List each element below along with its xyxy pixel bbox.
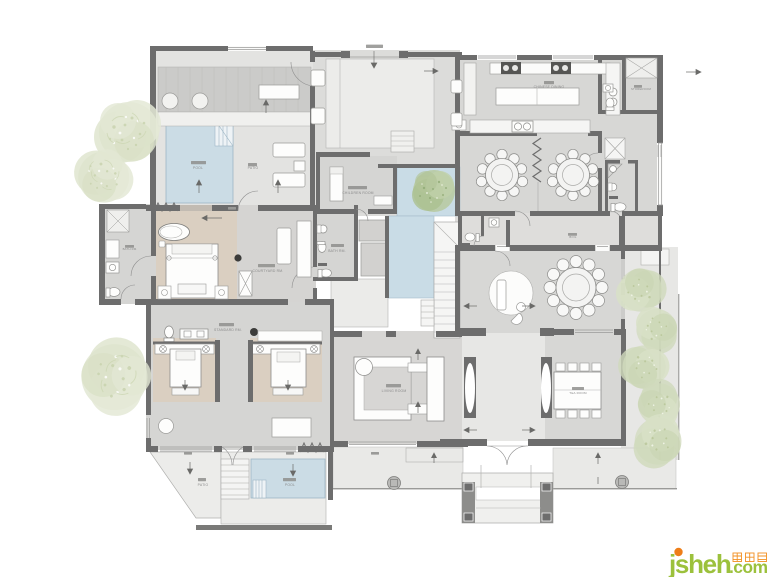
svg-text:PATIO: PATIO xyxy=(198,483,209,487)
svg-text:CHILDREN ROOM: CHILDREN ROOM xyxy=(342,191,373,195)
svg-text:STANDARD RM.: STANDARD RM. xyxy=(214,328,242,332)
svg-text:LIVING ROOM: LIVING ROOM xyxy=(382,389,407,393)
svg-text:.com: .com xyxy=(729,557,767,577)
svg-text:CHINESE DINING: CHINESE DINING xyxy=(534,85,565,89)
svg-text:TEA ROOM: TEA ROOM xyxy=(569,391,587,395)
svg-text:BATH RM.: BATH RM. xyxy=(328,249,346,253)
svg-text:POOL: POOL xyxy=(285,483,295,487)
svg-text:POOL: POOL xyxy=(193,166,203,170)
svg-text:COURTYARD RM.: COURTYARD RM. xyxy=(253,269,284,273)
svg-text:PATIO: PATIO xyxy=(248,166,259,170)
